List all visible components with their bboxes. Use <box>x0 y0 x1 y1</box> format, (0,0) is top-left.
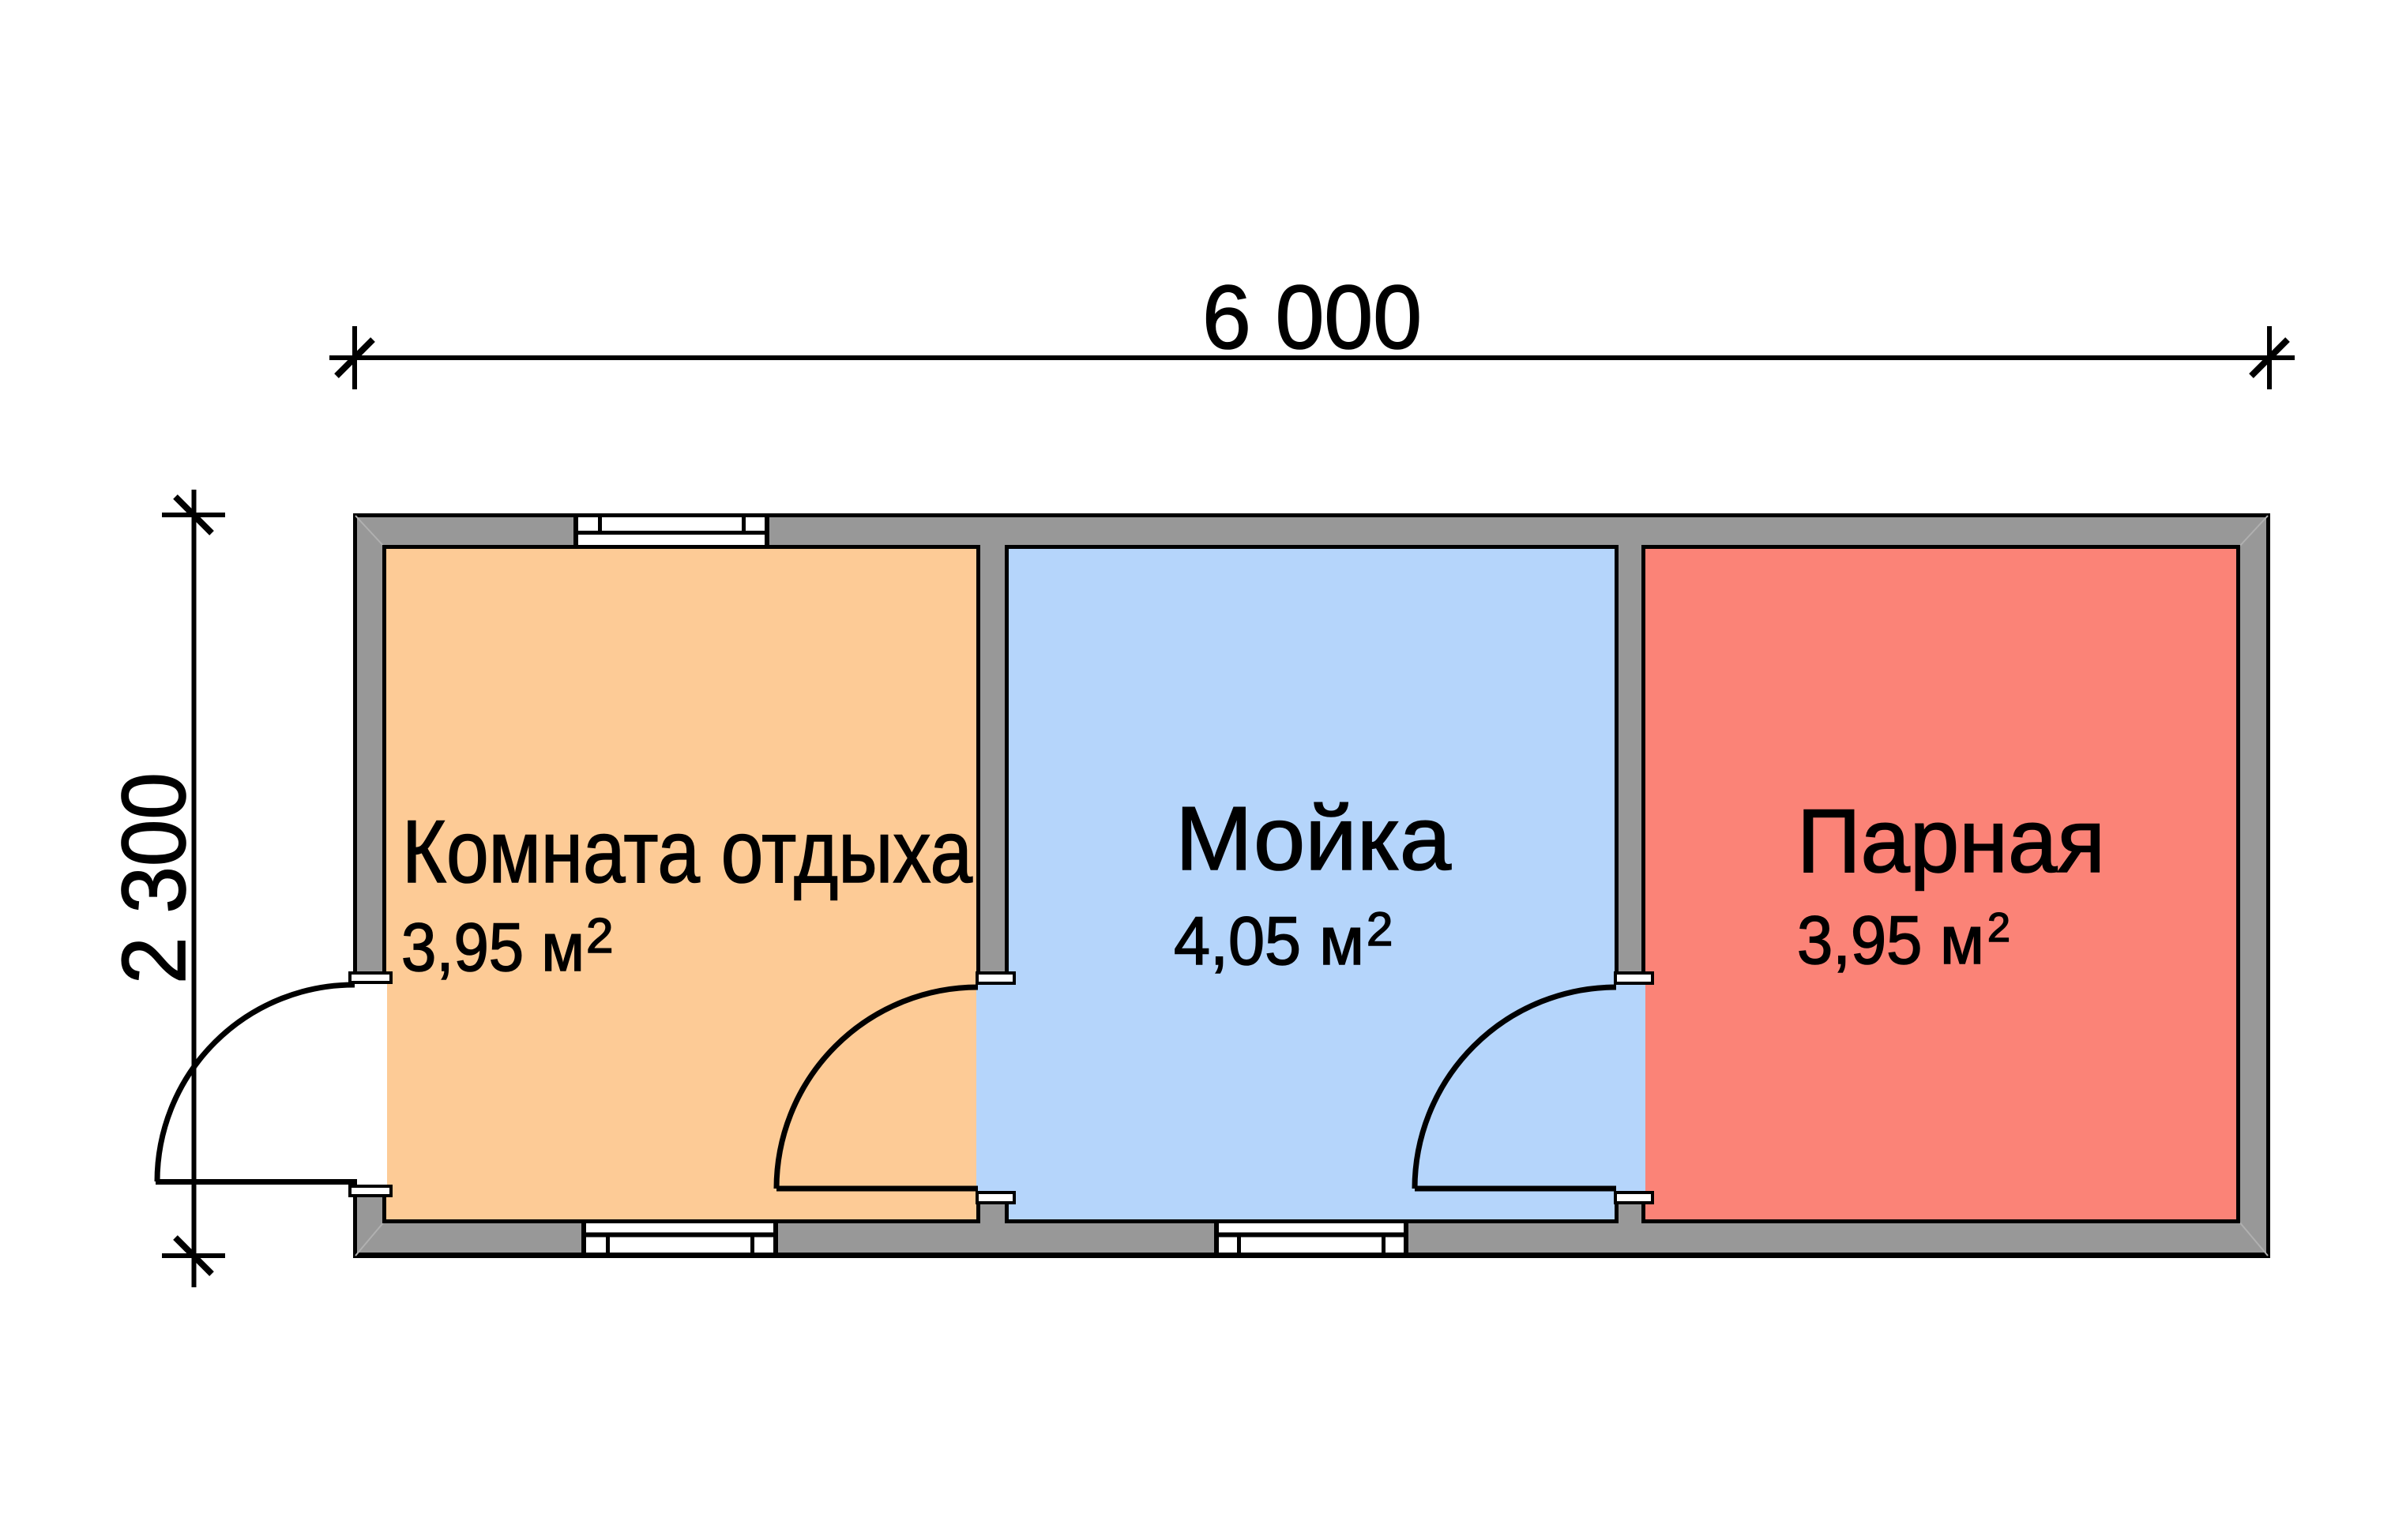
svg-text:2: 2 <box>1367 903 1393 956</box>
svg-text:2: 2 <box>586 909 613 963</box>
svg-text:6 000: 6 000 <box>1202 268 1422 368</box>
svg-text:4,05 м: 4,05 м <box>1174 903 1364 979</box>
svg-text:3,95 м: 3,95 м <box>401 910 585 986</box>
svg-text:Парная: Парная <box>1797 791 2105 892</box>
svg-text:Комната отдыха: Комната отдыха <box>402 802 973 901</box>
svg-text:3,95 м: 3,95 м <box>1797 903 1984 978</box>
svg-text:2: 2 <box>1987 905 2010 951</box>
svg-text:Мойка: Мойка <box>1175 789 1452 889</box>
svg-text:2 300: 2 300 <box>104 772 205 984</box>
